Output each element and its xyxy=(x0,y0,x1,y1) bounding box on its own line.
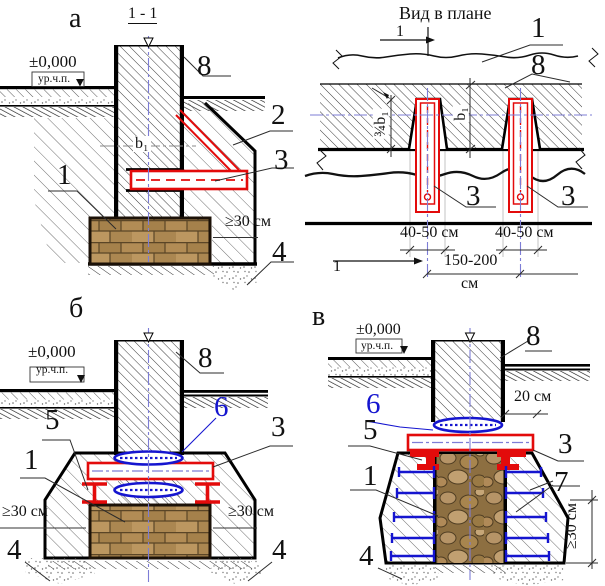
callout-angle-v: 5 xyxy=(363,416,378,445)
section-b-letter: б xyxy=(69,295,83,323)
callout-sand-b-right: 4 xyxy=(272,536,287,565)
plan-callout-foundation: 1 xyxy=(531,14,546,43)
foundation-reinforcement-drawing: а 1 - 1 ±0,000 ур.ч.п. 8 2 3 1 4 b₁ ≥30 … xyxy=(0,0,605,586)
callout-sand-b-left: 4 xyxy=(7,536,22,565)
callout-strut-a: 2 xyxy=(271,101,286,130)
callout-beam-b: 3 xyxy=(271,413,286,442)
plan-title: Вид в плане xyxy=(399,4,492,22)
plan-cut-mark-bottom: 1 xyxy=(333,259,341,275)
callout-foundation-b: 1 xyxy=(24,446,39,475)
dimension-depth-a: ≥30 см xyxy=(225,214,271,230)
dimension-height-v: ≥30 см xyxy=(564,503,580,549)
plan-dimension-niche-left: 40-50 см xyxy=(400,225,459,241)
callout-pad-b: 6 xyxy=(214,393,229,422)
section-a-cut-title: 1 - 1 xyxy=(128,6,157,24)
section-b-linework xyxy=(0,290,300,586)
plan-dimension-niche-right: 40-50 см xyxy=(495,225,554,241)
callout-foundation-v: 1 xyxy=(363,462,378,491)
section-b-elevation: ±0,000 xyxy=(28,343,76,360)
plan-dimension-niche-depth: ¾b₁ xyxy=(373,109,389,139)
callout-wall-b: 8 xyxy=(198,344,213,373)
callout-foundation-a: 1 xyxy=(57,161,72,190)
section-v-level-label: ур.ч.п. xyxy=(361,341,393,353)
dimension-b1-a: b₁ xyxy=(133,136,151,152)
plan-dimension-spacing-unit: см xyxy=(461,276,478,292)
section-a-letter: а xyxy=(69,5,81,33)
plan-dimension-b1: b₁ xyxy=(453,105,469,123)
callout-sand-a: 4 xyxy=(272,238,287,267)
callout-jacket-v: 7 xyxy=(554,468,569,497)
section-a-elevation: ±0,000 xyxy=(29,53,77,70)
dimension-depth-b-left: ≥30 см xyxy=(2,504,48,520)
dimension-offset-v: 20 см xyxy=(514,389,551,405)
callout-wall-a: 8 xyxy=(197,52,212,81)
section-v-letter: в xyxy=(312,303,325,331)
plan-callout-wall: 8 xyxy=(531,51,546,80)
section-v-elevation: ±0,000 xyxy=(356,322,401,338)
callout-wall-v: 8 xyxy=(526,322,541,351)
plan-callout-beam-left: 3 xyxy=(466,182,481,211)
plan-dimension-spacing: 150-200 xyxy=(444,253,497,269)
plan-cut-mark-top: 1 xyxy=(396,24,404,40)
section-a-level-label: ур.ч.п. xyxy=(38,74,70,86)
plan-callout-beam-right: 3 xyxy=(561,182,576,211)
section-b-level-label: ур.ч.п. xyxy=(36,365,68,377)
callout-plate-v: 3 xyxy=(558,430,573,459)
callout-beam-a: 3 xyxy=(274,146,289,175)
plan-view-linework xyxy=(300,0,605,290)
callout-sand-v: 4 xyxy=(359,542,374,571)
callout-support-b: 5 xyxy=(45,406,60,435)
dimension-depth-b-right: ≥30 см xyxy=(228,504,274,520)
